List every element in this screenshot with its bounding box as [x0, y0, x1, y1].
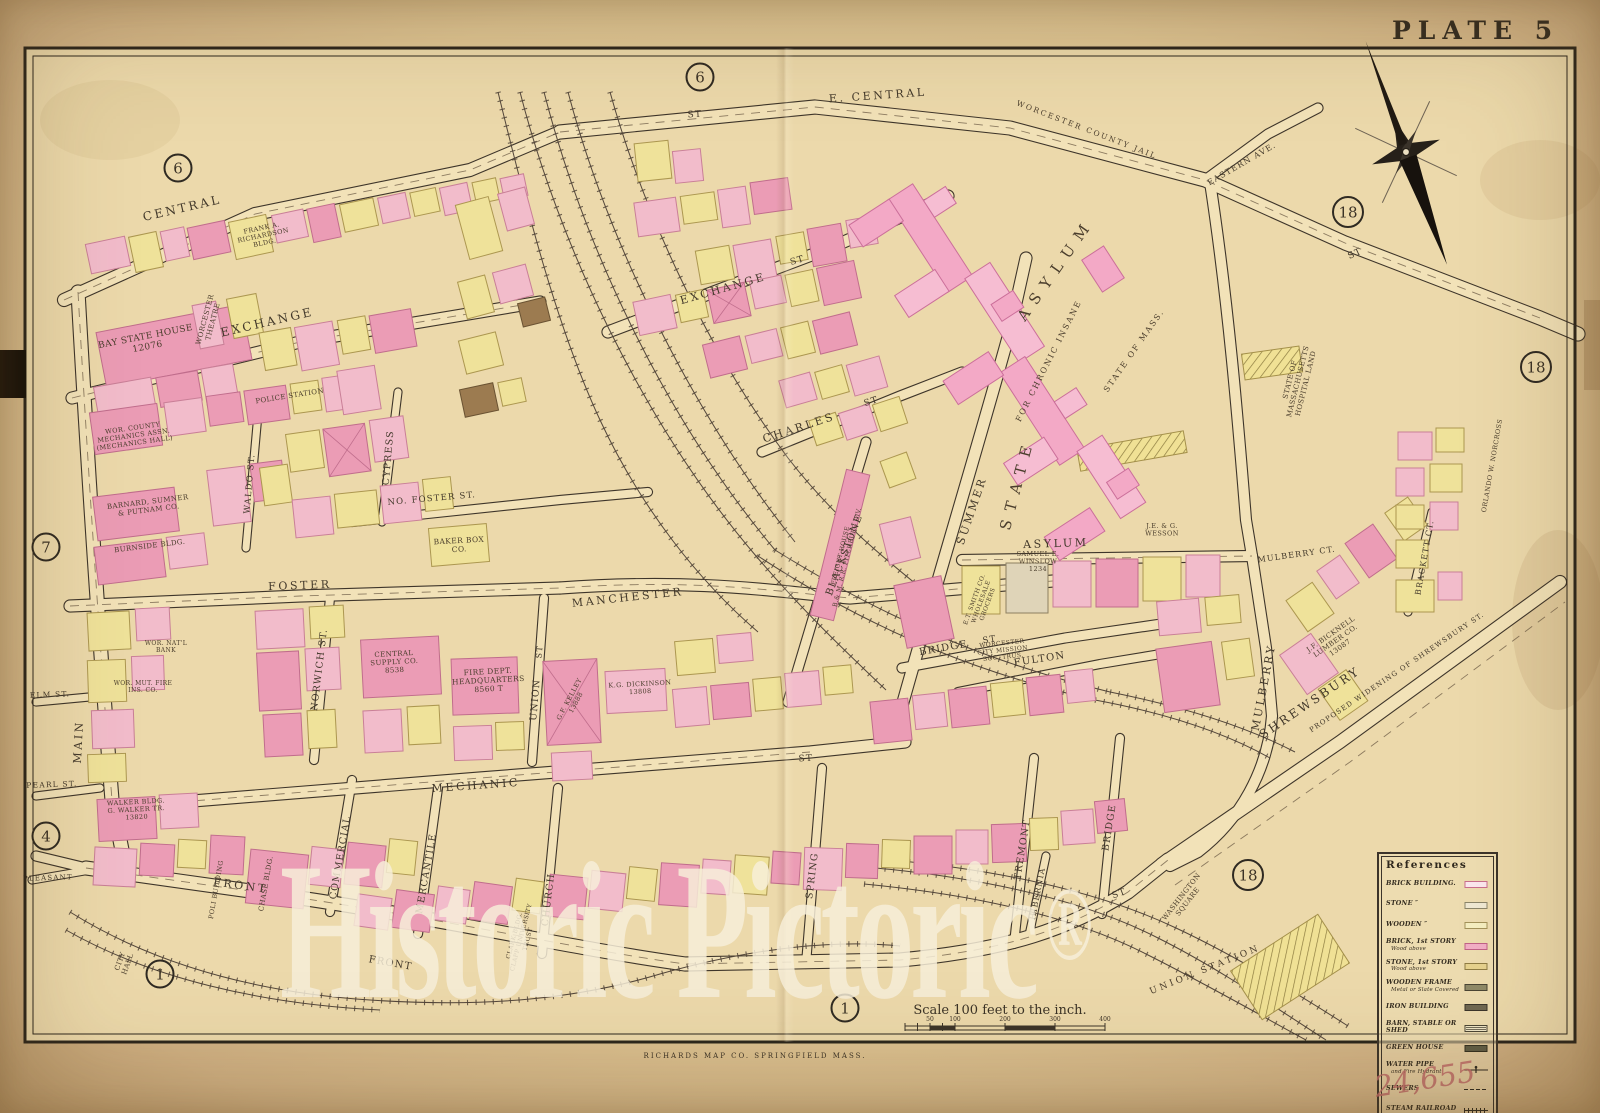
legend-item-label: STONE, 1st STORYWood above	[1386, 959, 1457, 972]
legend-item-label: BRICK BUILDING.	[1386, 880, 1456, 887]
building	[990, 680, 1025, 717]
building	[672, 149, 703, 184]
adjoining-plate-number: 6	[695, 69, 705, 87]
building	[344, 842, 386, 888]
building	[771, 851, 801, 885]
building	[334, 490, 379, 528]
building	[882, 840, 911, 869]
building	[1205, 595, 1241, 626]
legend-item-label: WOODEN FRAMEMetal or Slate Covered	[1386, 979, 1459, 992]
building	[717, 186, 750, 228]
building	[407, 705, 441, 745]
building	[88, 753, 127, 782]
legend-symbol-sw	[1463, 983, 1490, 992]
legend-row: BRICK, 1st STORYWood above	[1386, 936, 1490, 955]
building	[750, 178, 792, 215]
adjoining-plate-number: 7	[41, 539, 51, 557]
legend-symbol-rail	[1463, 1106, 1490, 1113]
legend-item-symbol	[1463, 874, 1490, 893]
building	[363, 709, 403, 753]
building	[259, 328, 297, 371]
building	[634, 140, 672, 181]
legend-row: BRICK BUILDING.	[1386, 874, 1490, 893]
building	[307, 709, 337, 748]
building	[453, 725, 492, 760]
building	[717, 633, 753, 664]
legend-row: STEAM RAILROAD	[1386, 1100, 1490, 1113]
building	[1026, 674, 1064, 715]
building	[255, 609, 305, 649]
building	[470, 882, 513, 925]
building	[672, 687, 709, 728]
legend-item-label: BRICK, 1st STORYWood above	[1386, 938, 1456, 951]
building	[135, 607, 171, 641]
building	[496, 722, 525, 751]
legend-symbol-sw	[1463, 1003, 1490, 1012]
building	[1221, 638, 1254, 680]
legend-symbol-sw	[1463, 921, 1490, 930]
building	[634, 197, 680, 237]
building	[711, 682, 752, 719]
legend-symbol-sw	[1463, 942, 1490, 951]
street-label: ST	[687, 110, 702, 121]
building	[498, 378, 526, 406]
legend-item-label: WOODEN ″	[1386, 921, 1427, 928]
building	[912, 692, 947, 729]
adjoining-plate-number: 6	[173, 160, 183, 178]
adjoining-plate-number: 1	[155, 966, 165, 984]
building	[1396, 468, 1424, 496]
building	[209, 835, 245, 875]
building	[1430, 464, 1462, 492]
legend-row: STONE, 1st STORYWood above	[1386, 956, 1490, 975]
street-label: FOSTER	[268, 578, 332, 593]
building	[1061, 809, 1095, 845]
building	[286, 430, 325, 472]
legend-row: WOODEN FRAMEMetal or Slate Covered	[1386, 977, 1490, 996]
legend-title: References	[1386, 859, 1490, 871]
building	[785, 671, 822, 708]
legend-item-label: BARN, STABLE OR SHED	[1386, 1020, 1463, 1034]
building	[948, 686, 990, 728]
building	[378, 192, 411, 223]
legend-symbol-sw	[1463, 962, 1490, 971]
legend-symbol-sw	[1463, 880, 1490, 889]
street-label: ASYLUM	[1022, 536, 1089, 551]
legend-item-symbol	[1463, 936, 1490, 955]
building	[354, 894, 392, 930]
building	[206, 392, 244, 426]
building	[369, 309, 417, 354]
building	[823, 665, 853, 695]
building	[1157, 598, 1202, 636]
building	[1029, 818, 1058, 851]
building	[816, 260, 861, 305]
legend-symbol-sw	[1463, 1044, 1490, 1053]
legend-item-label: GREEN HOUSE	[1386, 1044, 1443, 1051]
map-canvas: 667411181818CENTRALSTE. CENTRALEXCHANGEE…	[0, 0, 1600, 1113]
building	[257, 651, 302, 711]
legend-symbol-sw	[1463, 901, 1490, 910]
building	[551, 751, 592, 781]
legend-item-symbol	[1463, 1018, 1490, 1037]
legend-item-label: IRON BUILDING	[1386, 1003, 1449, 1010]
building	[733, 855, 770, 895]
building	[245, 849, 308, 909]
legend-item-symbol	[1463, 915, 1490, 934]
imprint: RICHARDS MAP CO. SPRINGFIELD MASS.	[644, 1052, 867, 1060]
building	[294, 321, 339, 371]
legend-row: IRON BUILDING	[1386, 997, 1490, 1016]
street-label: ST	[534, 645, 544, 659]
building	[164, 398, 206, 437]
building	[785, 269, 819, 306]
building	[680, 192, 718, 224]
building	[337, 365, 381, 414]
legend-row: STONE ″	[1386, 895, 1490, 914]
legend-row: GREEN HOUSE	[1386, 1038, 1490, 1057]
building	[914, 836, 952, 874]
plate-title: PLATE 5	[1392, 16, 1559, 45]
street-label: MAIN	[71, 720, 86, 764]
building	[1438, 572, 1462, 600]
building	[626, 867, 657, 902]
building	[633, 294, 677, 335]
scale-tick-label: 200	[999, 1016, 1011, 1023]
building	[386, 839, 417, 876]
legend-item-symbol	[1463, 895, 1490, 914]
building	[1096, 559, 1138, 607]
building	[753, 677, 784, 711]
place-label: J.E. & G.WESSON	[1145, 522, 1179, 538]
building	[1053, 561, 1091, 607]
building	[244, 385, 290, 425]
building	[701, 859, 731, 895]
legend-item-label: STONE ″	[1386, 900, 1418, 907]
building	[263, 713, 303, 757]
building	[337, 316, 370, 354]
building	[588, 870, 626, 911]
legend-item-symbol	[1463, 1100, 1490, 1113]
building	[93, 847, 137, 887]
scale-tick-label: 300	[1049, 1016, 1061, 1023]
building	[659, 863, 700, 908]
building	[434, 886, 470, 924]
scale-tick-label: 400	[1099, 1016, 1111, 1023]
legend-row: BARN, STABLE OR SHED	[1386, 1018, 1490, 1037]
street-label: ST	[798, 754, 813, 765]
building	[1396, 505, 1424, 529]
building	[870, 698, 912, 744]
building	[1064, 669, 1095, 704]
adjoining-plate-number: 18	[1238, 867, 1257, 885]
building	[675, 638, 716, 675]
building	[807, 223, 847, 266]
building	[1398, 432, 1432, 460]
adjoining-plate-number: 1	[840, 1000, 850, 1018]
adjoining-plate-number: 18	[1526, 359, 1545, 377]
legend-item-symbol	[1463, 977, 1490, 996]
legend-item-label: STEAM RAILROAD	[1386, 1105, 1456, 1112]
scale-tick-label: 50	[926, 1016, 934, 1023]
legend-item-sublabel: Wood above	[1386, 966, 1457, 972]
adjoining-plate-number: 18	[1338, 204, 1357, 222]
atlas-page: 667411181818CENTRALSTE. CENTRALEXCHANGEE…	[0, 0, 1600, 1113]
building	[1143, 557, 1181, 601]
adjoining-plate-number: 4	[41, 828, 51, 846]
building	[87, 611, 131, 651]
building	[292, 496, 334, 538]
building	[1186, 555, 1220, 597]
legend-symbol-swb	[1463, 1024, 1490, 1033]
binding-tab	[0, 350, 26, 398]
building	[177, 839, 206, 868]
building	[410, 188, 440, 217]
legend-item-symbol	[1463, 997, 1490, 1016]
building	[1156, 641, 1220, 712]
building	[259, 464, 292, 506]
scale-tick-label: 100	[949, 1016, 961, 1023]
building	[956, 830, 988, 864]
legend-item-symbol	[1463, 956, 1490, 975]
building	[1436, 428, 1464, 452]
building	[91, 709, 134, 748]
building	[845, 843, 878, 878]
street-label: PEARL ST.	[26, 779, 77, 790]
legend-item-sublabel: Wood above	[1386, 946, 1456, 952]
building	[139, 843, 175, 877]
building	[695, 245, 734, 284]
street-label: ELM ST.	[30, 689, 71, 699]
legend-item-sublabel: Metal or Slate Covered	[1386, 987, 1459, 993]
legend-row: WOODEN ″	[1386, 915, 1490, 934]
